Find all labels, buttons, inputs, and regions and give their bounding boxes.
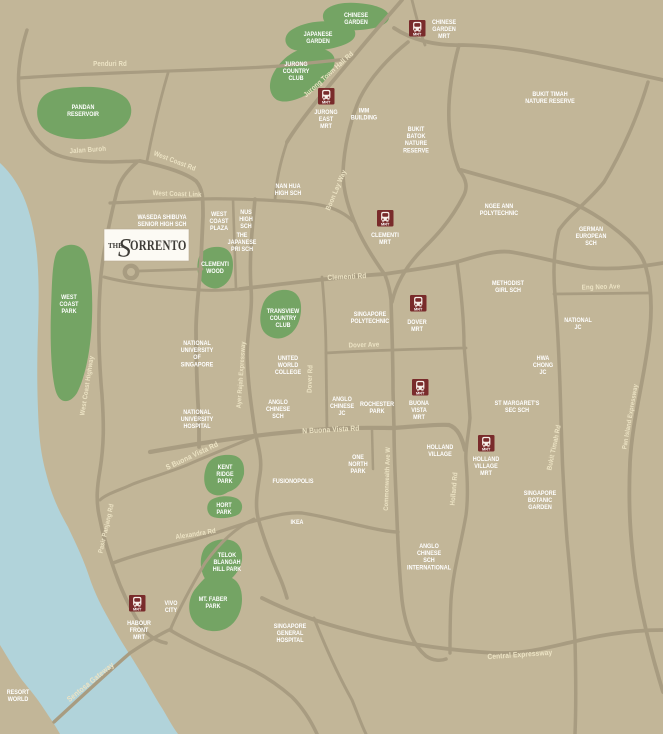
svg-text:MRT: MRT [414,307,423,312]
svg-text:KENTRIDGEPARK: KENTRIDGEPARK [216,465,233,486]
svg-text:NAN HUAHIGH SCH: NAN HUAHIGH SCH [275,184,302,198]
svg-text:Eng Neo Ave: Eng Neo Ave [582,283,621,292]
svg-text:WASEDA SHIBUYASENIOR HIGH SCH: WASEDA SHIBUYASENIOR HIGH SCH [137,215,187,229]
svg-text:Dover Rd: Dover Rd [306,365,314,393]
svg-text:MRT: MRT [416,391,425,396]
svg-text:HORTPARK: HORTPARK [216,503,232,517]
svg-text:MRT: MRT [413,32,422,37]
svg-text:NUSHIGHSCH: NUSHIGHSCH [239,210,253,231]
svg-text:HOLLANDVILLAGE: HOLLANDVILLAGE [427,445,454,459]
svg-text:JAPANESEGARDEN: JAPANESEGARDEN [304,32,333,46]
svg-text:VIVOCITY: VIVOCITY [165,601,178,615]
svg-text:NATIONALUNIVERSITYHOSPITAL: NATIONALUNIVERSITYHOSPITAL [181,410,214,431]
svg-text:ORRENTO: ORRENTO [130,238,187,254]
svg-text:MRT: MRT [322,100,331,105]
svg-text:BUKIT TIMAHNATURE RESERVE: BUKIT TIMAHNATURE RESERVE [525,92,575,106]
svg-text:RESORTWORLD: RESORTWORLD [7,690,30,704]
svg-text:SINGAPOREGENERALHOSPITAL: SINGAPOREGENERALHOSPITAL [274,624,307,645]
svg-text:WESTCOASTPARK: WESTCOASTPARK [60,295,79,316]
svg-text:IKEA: IKEA [291,520,305,526]
svg-text:S: S [118,234,131,263]
svg-text:Penduri Rd: Penduri Rd [93,61,127,68]
svg-text:SINGAPOREBOTANICGARDEN: SINGAPOREBOTANICGARDEN [524,491,557,512]
svg-text:UNITEDWORLDCOLLEGE: UNITEDWORLDCOLLEGE [275,356,301,377]
svg-text:CHINESEGARDEN: CHINESEGARDEN [344,13,368,27]
svg-text:NGEE ANNPOLYTECHNIC: NGEE ANNPOLYTECHNIC [480,204,519,218]
svg-text:SINGAPOREPOLYTECHNIC: SINGAPOREPOLYTECHNIC [351,312,390,326]
svg-text:FUSIONOPOLIS: FUSIONOPOLIS [273,479,314,485]
svg-text:METHODISTGIRL SCH: METHODISTGIRL SCH [492,281,524,295]
svg-text:MRT: MRT [133,607,142,612]
svg-text:WESTCOASTPLAZA: WESTCOASTPLAZA [210,212,229,233]
svg-text:Dover Ave: Dover Ave [348,341,379,350]
svg-text:MRT: MRT [482,447,491,452]
svg-text:MRT: MRT [381,222,390,227]
